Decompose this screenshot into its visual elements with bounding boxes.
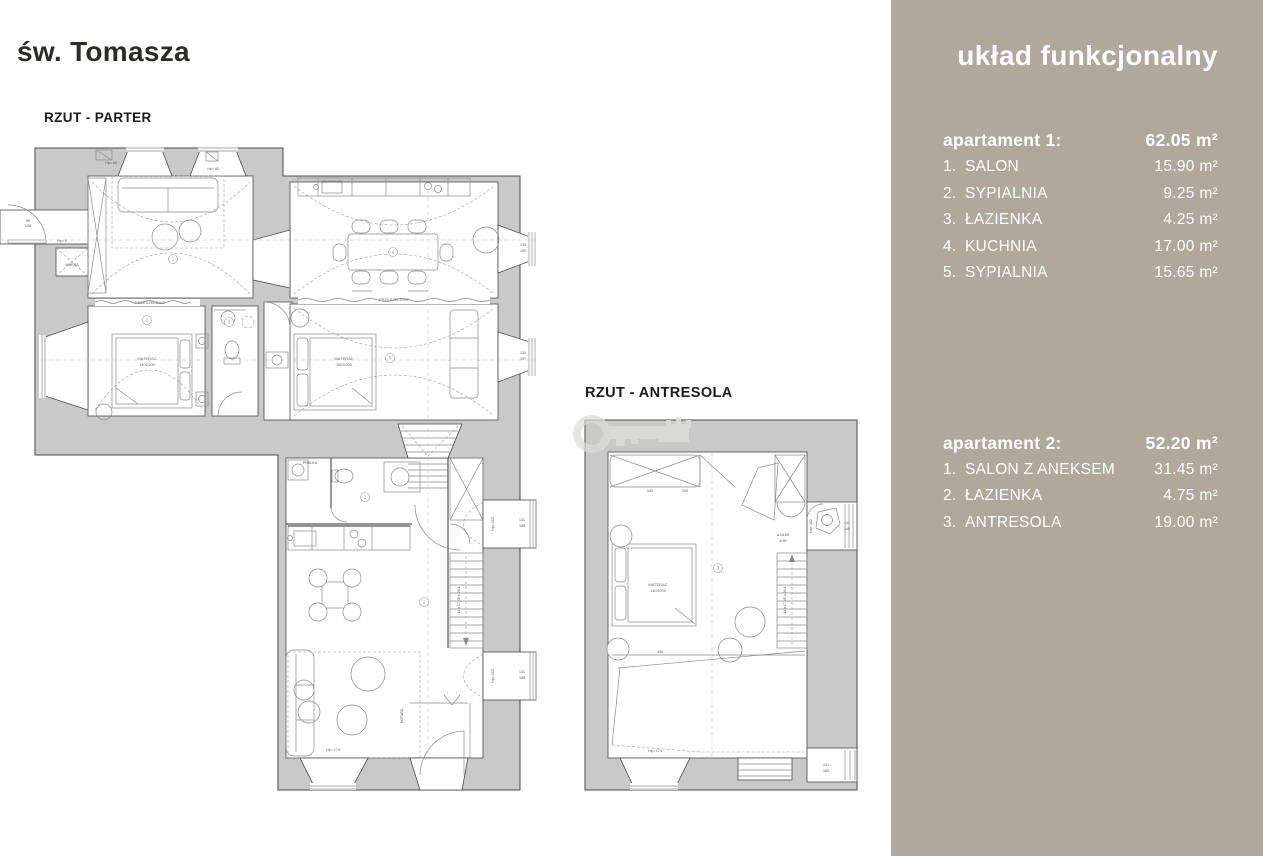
- room-row: 3. ANTRESOLA 19.00 m²: [943, 510, 1218, 537]
- hp162-label-1: Hp= 162: [491, 517, 495, 531]
- dim-wbay2-w: 131: [519, 670, 525, 674]
- room-lazienka-3: [212, 306, 258, 416]
- apartment-1-header: apartament 1: 62.05 m²: [943, 126, 1218, 154]
- apartment-1-total-area: 62.05 m²: [1146, 126, 1218, 154]
- apartment-2-total-area: 52.20 m²: [1146, 429, 1218, 457]
- room-row: 5. SYPIALNIA 15.65 m²: [943, 260, 1218, 287]
- room-area: 31.45 m²: [1154, 457, 1218, 484]
- room-row: 4. KUCHNIA 17.00 m²: [943, 234, 1218, 261]
- room-label: ŁAZIENKA: [965, 483, 1163, 510]
- dim-bbay-h: 197: [520, 357, 526, 361]
- room-label: SYPIALNIA: [965, 181, 1163, 208]
- materac-size-2: 180X200: [336, 362, 353, 367]
- room-number: 3.: [943, 207, 965, 234]
- dim-lbay-h: 165: [823, 769, 829, 773]
- room-area: 9.25 m²: [1163, 181, 1218, 208]
- pralka-label: PRALKA: [303, 461, 318, 465]
- apartment-2-name: apartament 2:: [943, 429, 1062, 457]
- antresola-marker-3: 3: [714, 564, 723, 573]
- wneka-label: WNĘKA: [65, 263, 79, 267]
- room-label: ŁAZIENKA: [965, 207, 1163, 234]
- hp88-label: Hp= 88: [105, 161, 117, 165]
- room-number: 1.: [943, 457, 965, 484]
- przeszklenie-label-1: PRZESZKLENIE: [135, 300, 165, 305]
- dim-340: 340: [682, 489, 688, 493]
- salon-kitchen-opening: [253, 230, 290, 288]
- bedroom-window-bay: [498, 332, 536, 382]
- dim-kbay-h: 190: [520, 249, 526, 253]
- room-number: 2.: [943, 483, 965, 510]
- dim-wbay1-h: 165: [519, 524, 525, 528]
- wing-marker-1: 1: [420, 598, 429, 607]
- note-a1: a 16,65: [777, 533, 789, 537]
- room-area: 17.00 m²: [1154, 234, 1218, 261]
- materac-size-1: 140X200: [139, 362, 156, 367]
- room-marker-1: 1: [169, 255, 178, 264]
- room-marker-4: 4: [389, 248, 398, 257]
- hp162-label-2: Hp= 162: [491, 669, 495, 683]
- dim-bath-w: 131: [844, 521, 850, 525]
- room-label: SALON: [965, 154, 1154, 181]
- room-label: KUCHNIA: [965, 234, 1154, 261]
- apartment-1-name: apartament 1:: [943, 126, 1062, 154]
- hp0-label: Hp= 0: [57, 239, 67, 243]
- antresola-stair-note: 11 x 17,45 x 26,1: [783, 586, 787, 613]
- room-salon: [88, 176, 253, 298]
- entry-passage: [0, 205, 88, 244]
- apartment-2-header: apartament 2: 52.20 m²: [943, 429, 1218, 457]
- room-number: 3.: [943, 510, 965, 537]
- dim-245: 245: [647, 489, 653, 493]
- sidebar-heading: układ funkcjonalny: [943, 40, 1218, 72]
- room-number: 5.: [943, 260, 965, 287]
- room-marker-2: 2: [143, 316, 152, 325]
- antresola-plan: 11 x 17,45 x 26,1: [585, 420, 857, 790]
- hp174-label: Hp= 174: [326, 748, 340, 752]
- stair-note: 11 x 17,45 x 26,1: [457, 586, 461, 613]
- dim-bath-h: 145: [844, 527, 850, 531]
- room-area: 4.25 m²: [1163, 207, 1218, 234]
- room-marker-3: 3: [225, 318, 234, 327]
- antresola-flat-window: [738, 758, 792, 780]
- antresola-materac-label: MATERAC: [648, 582, 667, 587]
- room-row: 3. ŁAZIENKA 4.25 m²: [943, 207, 1218, 234]
- przeszklenie-label-2: PRZESZKLENIE: [379, 297, 409, 302]
- materac-label-2: MATERAC: [334, 356, 353, 361]
- room-sypialnia-5: [290, 304, 498, 420]
- floor-plan-canvas: 11 x 17,45 x 26,1: [0, 0, 890, 856]
- dim-445: 445: [657, 650, 663, 654]
- antresola-bathroom: [807, 502, 857, 550]
- hp85-label: Hp= 85: [207, 167, 219, 171]
- dim-entry-w: 98: [26, 219, 30, 223]
- sidebar: układ funkcjonalny apartament 1: 62.05 m…: [891, 0, 1263, 856]
- room-area: 15.65 m²: [1154, 260, 1218, 287]
- room-area: 19.00 m²: [1154, 510, 1218, 537]
- parter-plan: 11 x 17,45 x 26,1: [0, 145, 536, 790]
- dim-entry-h: 128: [25, 224, 31, 228]
- room-label: SALON Z ANEKSEM: [965, 457, 1154, 484]
- room-row: 1. SALON Z ANEKSEM 31.45 m²: [943, 457, 1218, 484]
- room-number: 2.: [943, 181, 965, 208]
- wneka-niche: [56, 248, 88, 276]
- page: św. Tomasza RZUT - PARTER RZUT - ANTRESO…: [0, 0, 1263, 856]
- antresola-hp174: Hp= 174: [648, 749, 662, 753]
- room-area: 15.90 m²: [1154, 154, 1218, 181]
- dim-bbay-w: 134: [520, 351, 526, 355]
- dim-wbay2-h: 165: [519, 676, 525, 680]
- room-row: 1. SALON 15.90 m²: [943, 154, 1218, 181]
- room-number: 4.: [943, 234, 965, 261]
- room-area: 4.75 m²: [1163, 483, 1218, 510]
- apartment-1-block: apartament 1: 62.05 m² 1. SALON 15.90 m²…: [943, 126, 1218, 287]
- room-number: 1.: [943, 154, 965, 181]
- apartment-2-block: apartament 2: 52.20 m² 1. SALON Z ANEKSE…: [943, 429, 1218, 537]
- wing-marker-2: 2: [361, 493, 370, 502]
- kitchen-window-bay: [498, 225, 536, 273]
- dim-kbay-w: 133: [520, 243, 526, 247]
- room-label: ANTRESOLA: [965, 510, 1154, 537]
- room-row: 2. ŁAZIENKA 4.75 m²: [943, 483, 1218, 510]
- antresola-right-bay: [807, 748, 857, 782]
- antresola-hp162: Hp= 162: [809, 519, 813, 533]
- room-marker-5: 5: [386, 354, 395, 363]
- room-row: 2. SYPIALNIA 9.25 m²: [943, 181, 1218, 208]
- materac-label-1: MATERAC: [137, 356, 156, 361]
- kotara-label: KOTARA: [400, 708, 404, 723]
- dim-lbay-w: 131: [823, 763, 829, 767]
- note-a2: a 55: [780, 539, 787, 543]
- room-label: SYPIALNIA: [965, 260, 1154, 287]
- salon-window-bay-1: [118, 145, 172, 176]
- dim-wbay1-w: 131: [519, 518, 525, 522]
- antresola-materac-size: 140X200: [650, 588, 667, 593]
